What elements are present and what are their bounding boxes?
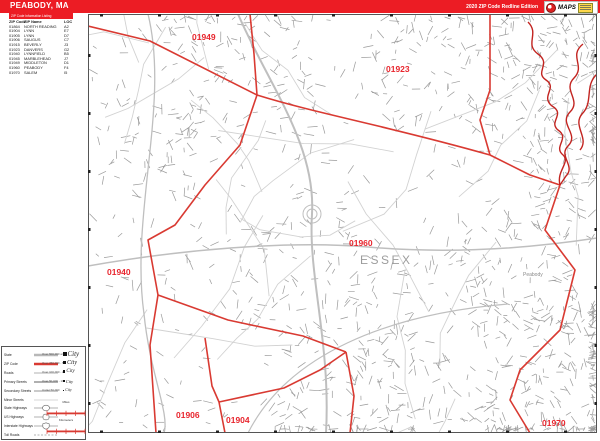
table-row: 01970SALEMI5 <box>9 71 73 76</box>
city-population-range: Under 50,000 <box>42 388 63 392</box>
zip-label: 01949 <box>192 32 216 42</box>
legend-item-label: Primary Streets <box>4 380 33 384</box>
page-title: PEABODY, MA <box>10 1 69 10</box>
scale-bar: Kilometers <box>46 418 86 440</box>
scale-bar-label: Kilometers <box>46 418 86 422</box>
map-legend: StateZIP CodeRoadsPrimary StreetsSeconda… <box>1 346 86 440</box>
logo-text: MAPS <box>558 5 576 11</box>
city-sample-label: City <box>65 388 71 392</box>
legend-item-label: Roads <box>4 371 33 375</box>
award-badge <box>578 3 593 13</box>
legend-item-label: Toll Roads <box>4 433 33 437</box>
scale-bar-label: Miles <box>46 400 86 404</box>
city-population-range: Over 50,000 - 100,000 <box>42 379 63 383</box>
legend-item-label: Secondary Streets <box>4 389 33 393</box>
city-size-item: Under 50,000City <box>42 388 72 392</box>
scale-bar-graphic <box>46 428 86 435</box>
city-size-item: Over 50,000 - 100,000City <box>42 379 73 384</box>
header-bar: PEABODY, MA 2020 ZIP Code Redline Editio… <box>0 0 600 13</box>
zip-table-body: 01864NORTH READINGA201904LYNNE701905LYNN… <box>9 25 73 76</box>
city-marker-icon <box>63 361 66 364</box>
city-sample-label: City <box>68 350 80 358</box>
city-label: Peabody <box>523 272 543 278</box>
city-sample-label: City <box>67 360 77 366</box>
legend-item-label: Interstate Highways <box>4 424 33 428</box>
city-size-item: Over 250,000 - 500,000City <box>42 360 77 366</box>
map-canvas: 01949019230196001940019060190401970ESSEX… <box>88 14 597 433</box>
city-population-range: Over 100,000 - 250,000 <box>42 370 63 374</box>
city-marker-icon <box>63 380 65 382</box>
city-sample-label: City <box>66 379 73 384</box>
city-size-item: Over 100,000 - 250,000City <box>42 369 75 374</box>
zip-label: 01940 <box>107 267 131 277</box>
zip-label: 01970 <box>542 418 566 428</box>
legend-item-label: State <box>4 353 33 357</box>
city-sample-label: City <box>66 369 74 374</box>
city-population-range: Over 500,000 and above <box>42 352 63 356</box>
zip-label: 01960 <box>349 238 373 248</box>
county-label: ESSEX <box>360 253 413 267</box>
loc-cell: I5 <box>64 71 73 76</box>
legend-item-label: Minor Streets <box>4 398 33 402</box>
globe-icon <box>546 3 556 13</box>
legend-item-label: State Highways <box>4 406 33 410</box>
zip-name-cell: SALEM <box>24 71 64 76</box>
zip-label: 01906 <box>176 410 200 420</box>
city-marker-icon <box>63 370 65 372</box>
legend-item-label: US Highways <box>4 415 33 419</box>
city-size-item: Over 500,000 and aboveCity <box>42 350 79 358</box>
city-population-range: Over 250,000 - 500,000 <box>42 361 63 365</box>
city-marker-icon <box>63 352 67 356</box>
city-marker-icon <box>63 390 64 391</box>
edition-label: 2020 ZIP Code Redline Edition <box>466 4 538 10</box>
marketmaps-logo: MAPS <box>544 1 598 14</box>
zip-code-table: ZIP Code Information Listing ZIP Code ZI… <box>9 13 73 75</box>
legend-item-label: ZIP Code <box>4 362 33 366</box>
zip-label: 01923 <box>386 64 410 74</box>
zip-code-cell: 01970 <box>9 71 24 76</box>
scale-bar-graphic <box>46 410 86 417</box>
zip-label: 01904 <box>226 415 250 425</box>
